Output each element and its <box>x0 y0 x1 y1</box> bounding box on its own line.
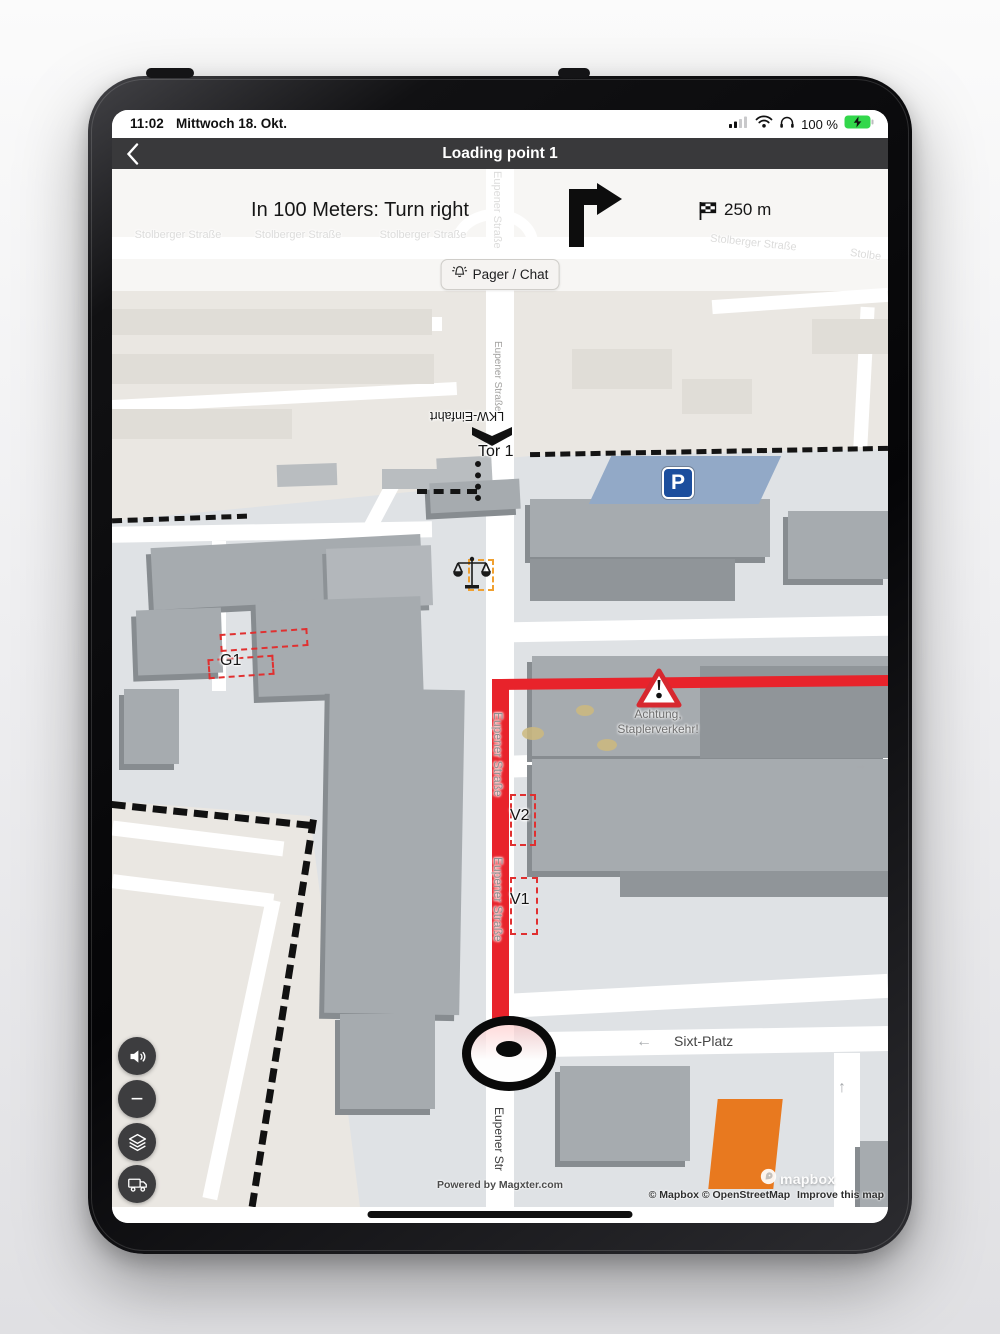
gate-label: Tor 1 <box>478 443 514 461</box>
zone-label-v2: V2 <box>510 807 530 825</box>
mapbox-logo-icon <box>760 1168 777 1190</box>
turn-right-arrow-icon <box>564 183 622 252</box>
building <box>572 349 672 389</box>
building <box>530 499 770 557</box>
map-attribution[interactable]: © Mapbox © OpenStreetMap Improve this ma… <box>649 1189 884 1201</box>
warning-line-1: Achtung, <box>588 707 728 722</box>
street-label-vertical: Eupener Str <box>492 1107 506 1207</box>
battery-charging-icon <box>844 115 874 134</box>
remaining-distance: 250 m <box>724 200 771 220</box>
parking-sign: P <box>662 467 694 499</box>
building <box>620 871 888 897</box>
building <box>340 1014 435 1109</box>
boundary-dotted-line <box>475 461 481 501</box>
finish-flag-icon <box>698 201 718 226</box>
home-strip <box>112 1207 888 1223</box>
one-way-up-arrow: ↑ <box>838 1079 846 1097</box>
building <box>560 1066 690 1161</box>
truck-button[interactable] <box>118 1165 156 1203</box>
instruction-text: In 100 Meters: Turn right <box>240 199 480 222</box>
zone-label-g1: G1 <box>220 652 241 670</box>
lkw-einfahrt-label: LKW-Einfahrt <box>430 409 504 423</box>
building <box>532 759 888 871</box>
home-indicator[interactable] <box>368 1211 633 1218</box>
battery-percent: 100 % <box>801 117 838 132</box>
attribution-copyright[interactable]: © Mapbox © OpenStreetMap <box>649 1189 791 1201</box>
warning-line-2: Staplerverkehr! <box>588 722 728 737</box>
bell-icon <box>452 264 468 285</box>
warning-text: Achtung, Staplerverkehr! <box>588 707 728 737</box>
building <box>112 354 434 384</box>
mapbox-wordmark: mapbox <box>780 1171 835 1187</box>
minus-icon: − <box>131 1088 144 1110</box>
status-date: Mittwoch 18. Okt. <box>176 116 287 131</box>
zoom-out-button[interactable]: − <box>118 1080 156 1118</box>
position-dot <box>496 1041 522 1057</box>
scales-icon <box>452 555 492 596</box>
one-way-left-arrow: ← <box>636 1033 652 1051</box>
status-bar: 11:02 Mittwoch 18. Okt. 100 % <box>112 110 888 138</box>
cellular-signal-icon <box>729 115 749 133</box>
boundary-dashed-line <box>417 489 477 494</box>
tablet-device-frame: 11:02 Mittwoch 18. Okt. 100 % Loading po… <box>88 76 912 1254</box>
page-title: Loading point 1 <box>112 145 888 163</box>
mapbox-logo[interactable]: mapbox <box>760 1168 835 1190</box>
building <box>112 309 432 335</box>
layers-button[interactable] <box>118 1123 156 1161</box>
building <box>124 689 179 764</box>
status-icons: 100 % <box>729 116 874 132</box>
building <box>812 319 888 354</box>
zone-label-v1: V1 <box>510 891 530 909</box>
boundary-dashed-line <box>249 819 317 1207</box>
nav-header: Loading point 1 <box>112 138 888 169</box>
sound-button[interactable] <box>118 1037 156 1075</box>
building <box>530 559 735 601</box>
volume-button <box>146 68 194 78</box>
pager-chat-label: Pager / Chat <box>473 267 549 282</box>
road <box>112 874 274 908</box>
power-button <box>558 68 590 78</box>
screen: 11:02 Mittwoch 18. Okt. 100 % Loading po… <box>112 110 888 1223</box>
building <box>277 463 338 487</box>
street-label-on-route: Eupener Straße <box>491 712 505 830</box>
wifi-icon <box>755 115 773 133</box>
road <box>834 1053 860 1207</box>
building <box>112 409 292 439</box>
current-position-indicator <box>462 1016 556 1091</box>
powered-by-label: Powered by Magxter.com <box>412 1179 588 1191</box>
street-label-on-route: Eupener Straße <box>491 857 505 1002</box>
street-label-sixt: Sixt-Platz <box>674 1033 733 1049</box>
attribution-improve-link[interactable]: Improve this map <box>797 1189 884 1201</box>
headphones-icon <box>779 115 795 134</box>
map-canvas[interactable]: P G1 V2 V1 Stolbe <box>112 169 888 1207</box>
map-dot <box>597 739 617 751</box>
building <box>788 511 888 579</box>
pager-chat-button[interactable]: Pager / Chat <box>441 259 560 290</box>
road <box>202 899 280 1200</box>
instruction-overlay: In 100 Meters: Turn right 250 m Pager / … <box>112 169 888 291</box>
map-dot <box>522 727 544 740</box>
road <box>112 821 284 857</box>
building <box>682 379 752 414</box>
building <box>324 688 465 1015</box>
status-time: 11:02 <box>130 116 164 131</box>
one-way-right-arrow: → <box>854 757 867 772</box>
